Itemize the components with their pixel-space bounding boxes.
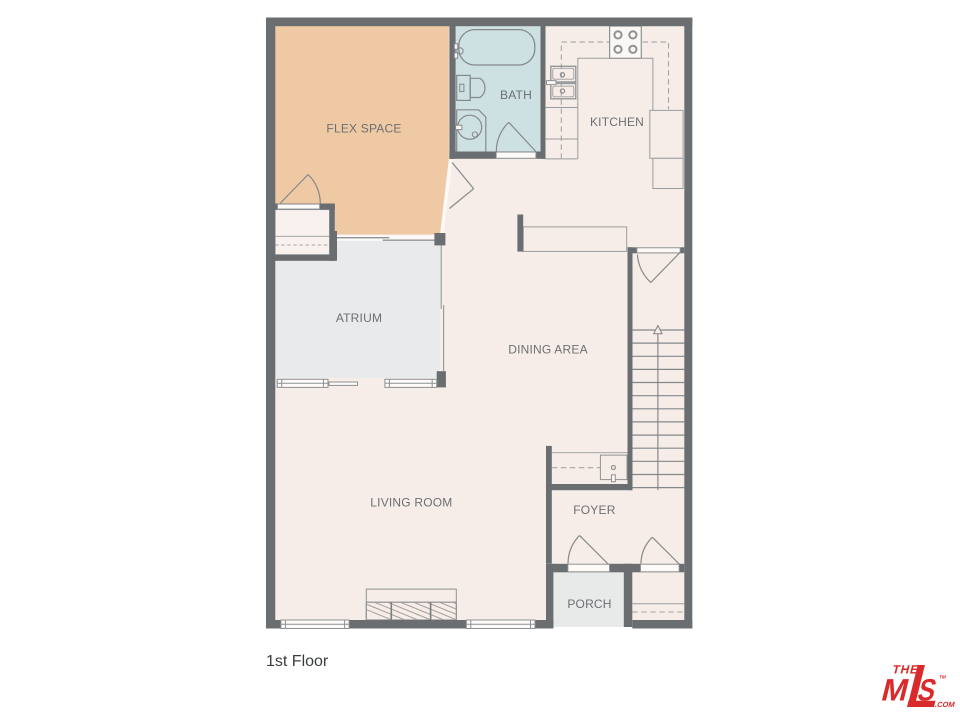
svg-text:FLEX SPACE: FLEX SPACE [326,122,401,136]
svg-text:DINING AREA: DINING AREA [508,343,588,357]
svg-text:BATH: BATH [500,88,532,102]
svg-text:TM: TM [939,675,947,680]
svg-text:LIVING ROOM: LIVING ROOM [370,496,452,510]
svg-text:PORCH: PORCH [567,597,611,611]
svg-text:1st Floor: 1st Floor [266,653,329,670]
svg-text:KITCHEN: KITCHEN [590,115,644,129]
svg-text:ATRIUM: ATRIUM [336,311,382,325]
svg-text:M: M [878,673,912,707]
svg-text:.COM: .COM [934,700,956,709]
svg-text:FOYER: FOYER [573,503,615,517]
